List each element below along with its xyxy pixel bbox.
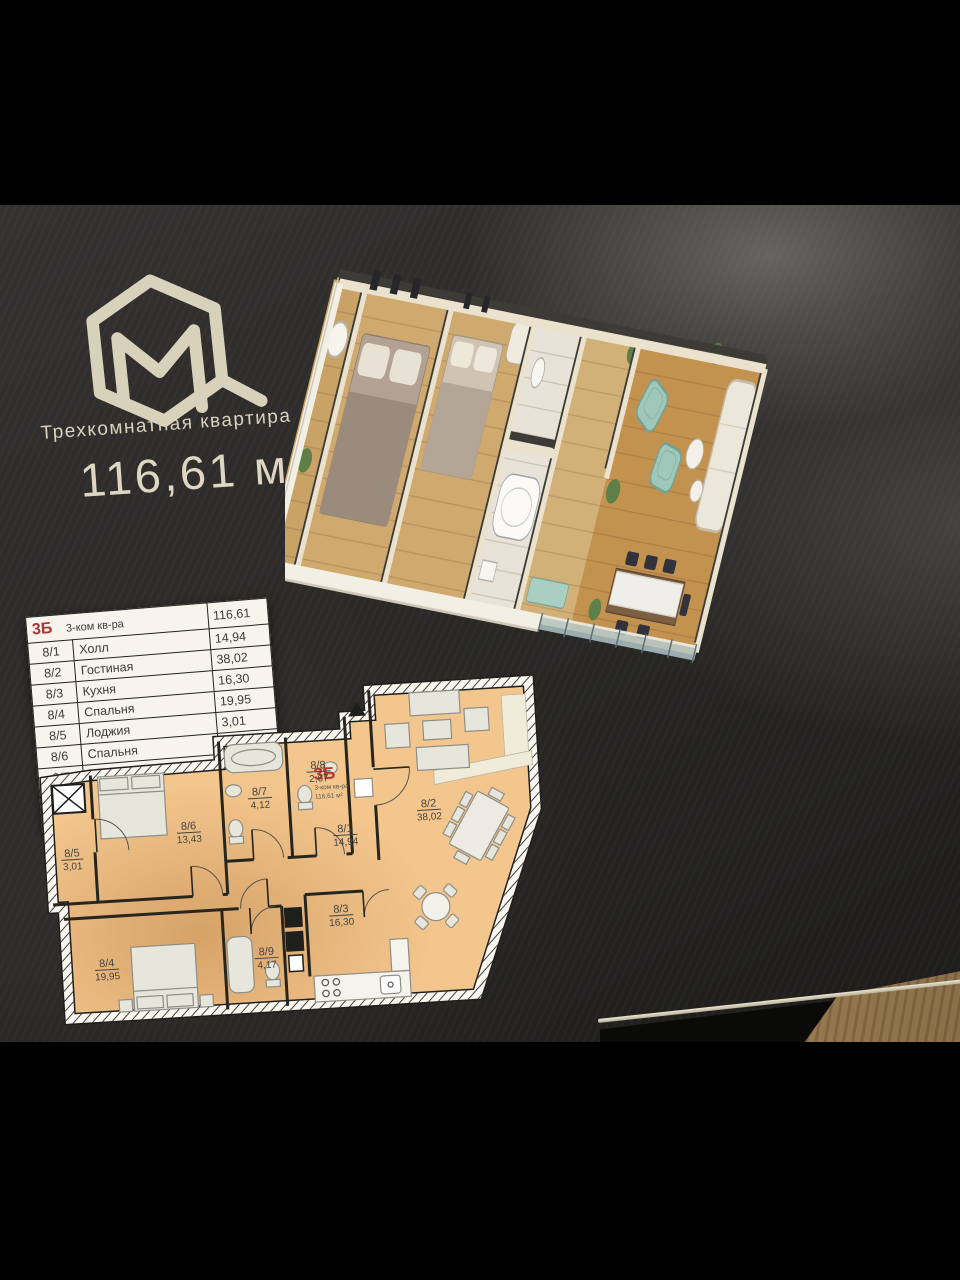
room-label-id: 8/9: [258, 946, 274, 959]
room-label-id: 8/7: [252, 786, 268, 799]
room-label-area: 3,01: [63, 861, 84, 873]
room-label-id: 8/2: [421, 797, 437, 810]
room-label-area: 16,30: [329, 917, 355, 930]
room-label-id: 8/6: [181, 820, 197, 833]
entrance-door: [347, 702, 366, 717]
room-label-area: 19,95: [95, 971, 121, 984]
hall-cabinet: [354, 778, 373, 797]
unit-label: 3Б: [31, 619, 53, 638]
apartment-2d-floorplan: 3Б 3-ком кв-ра 116,61 м² 8/1 14,94 8/2 3…: [30, 660, 566, 1042]
room-label-area: 4,12: [250, 800, 271, 812]
room-label-area: 14,94: [333, 836, 359, 849]
poster-page: Трехкомнатная квартира 116,61 м2: [0, 205, 960, 1042]
room-label-area: 2,67: [309, 773, 330, 785]
logo-strokes: [89, 270, 262, 427]
bed-8-6: [97, 773, 167, 839]
unit-type-label: 3-ком кв-ра: [65, 618, 124, 635]
room-label-id: 8/5: [64, 847, 80, 860]
room-label-id: 8/1: [337, 823, 353, 836]
photo-of-floorplan-poster: Трехкомнатная квартира 116,61 м2: [0, 0, 960, 1280]
apartment-3d-render: [285, 205, 960, 710]
render-projection: [285, 263, 770, 663]
room-label-area: 38,02: [417, 811, 443, 824]
room-label-area: 4,17: [257, 959, 278, 971]
room-label-id: 8/4: [99, 957, 115, 970]
room-label-id: 8/3: [333, 903, 349, 916]
window-symbol: [52, 784, 86, 814]
room-label-area: 13,43: [177, 834, 203, 847]
room-label-id: 8/8: [310, 759, 326, 772]
